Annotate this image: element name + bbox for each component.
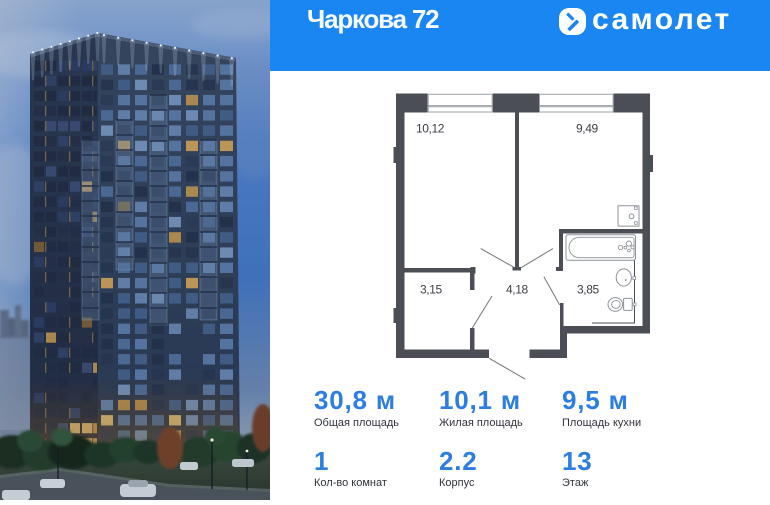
svg-text:4,18: 4,18 [506,283,528,297]
svg-text:3,15: 3,15 [420,282,442,296]
svg-text:3,85: 3,85 [577,283,599,297]
svg-text:10,12: 10,12 [416,122,445,136]
svg-text:9,49: 9,49 [576,122,598,136]
